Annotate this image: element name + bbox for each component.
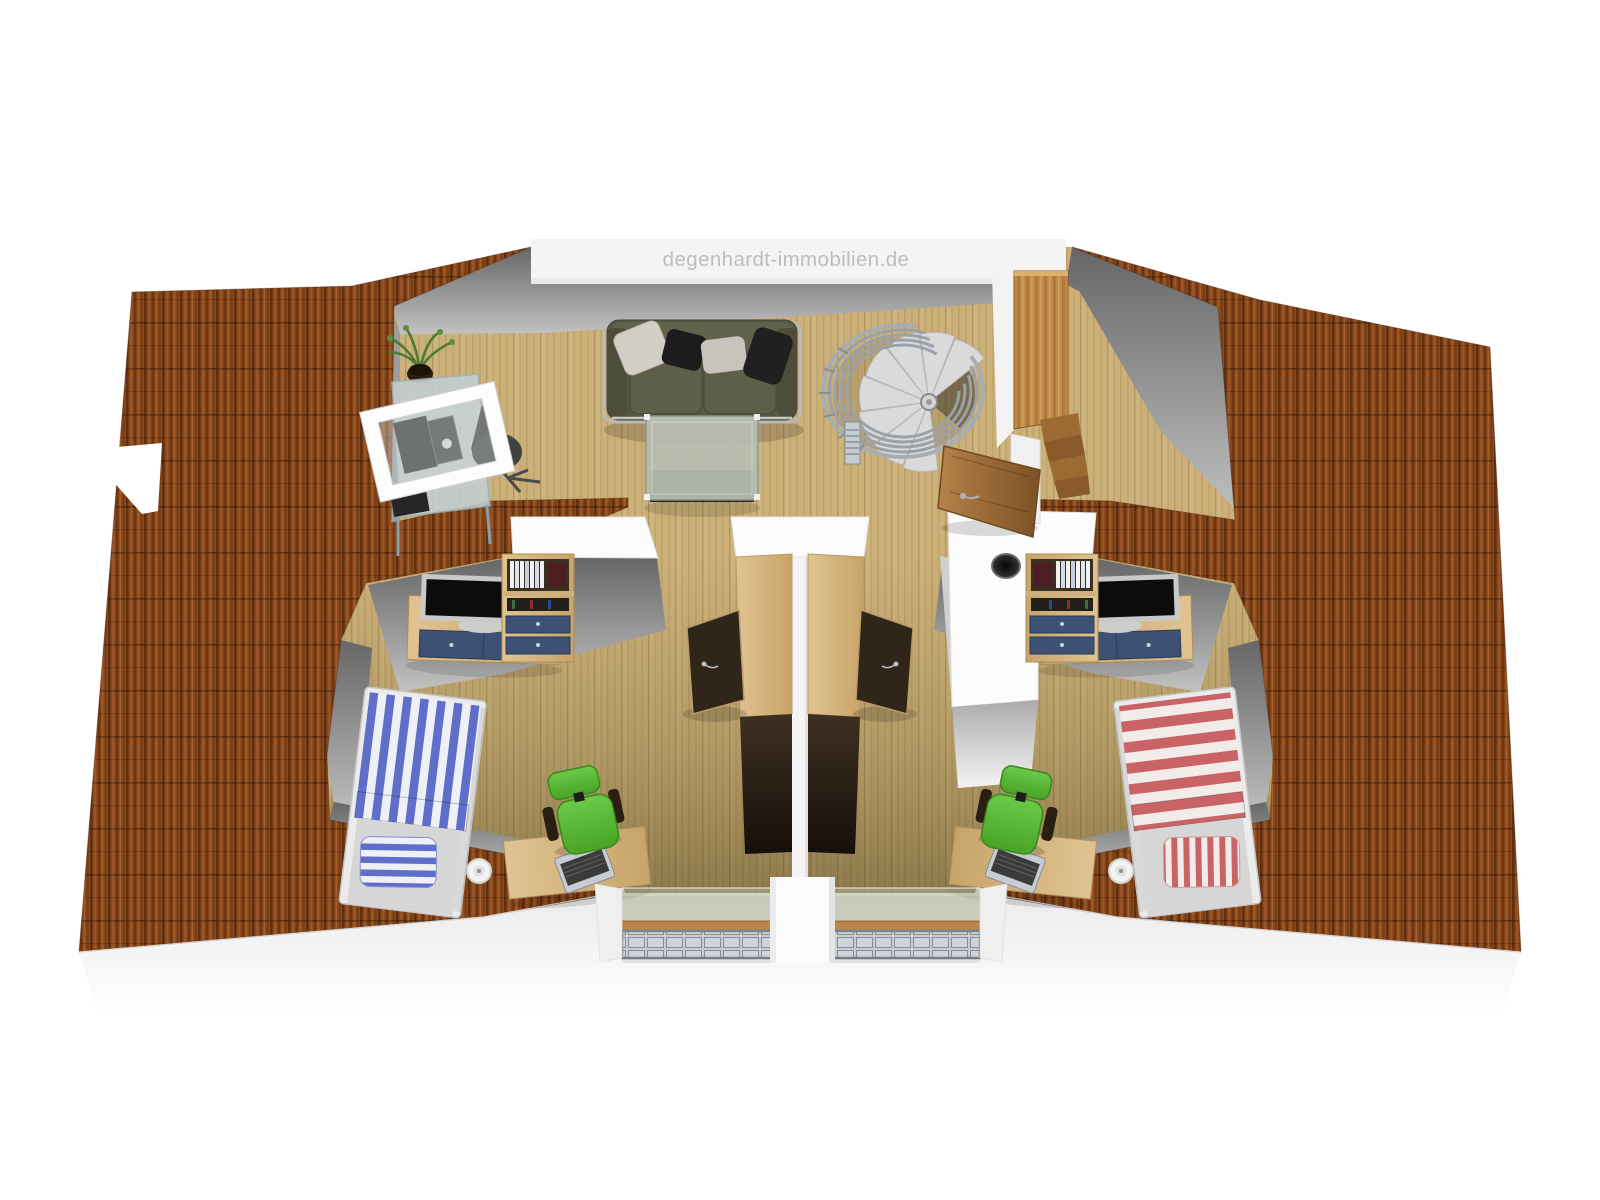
wardrobe-right-top: [808, 554, 864, 717]
balcony-railing: [829, 931, 980, 958]
pillow-blue: [360, 836, 437, 887]
jamb-left: [595, 884, 622, 962]
floor-plan-rendering: degenhardt-immobilien.de: [0, 0, 1600, 1200]
coffee-table: [644, 414, 760, 517]
pillow-red: [1163, 836, 1240, 887]
sill: [618, 921, 776, 931]
center-pillar: [770, 877, 835, 963]
floor-plan-canvas: degenhardt-immobilien.de: [0, 0, 1600, 1200]
pillow-light-2: [700, 335, 748, 374]
bookshelf: [502, 554, 574, 662]
wardrobe-left-top: [736, 554, 792, 717]
balcony-right: [826, 888, 984, 963]
top-wall-band: degenhardt-immobilien.de: [531, 239, 1066, 284]
duvet-blue: [357, 692, 481, 809]
paper-roll: [467, 859, 491, 883]
balcony-left: [618, 888, 776, 963]
closet-door-right: [856, 610, 913, 714]
watermark-text: degenhardt-immobilien.de: [663, 248, 910, 271]
glazing: [829, 888, 980, 923]
wardrobe-left-front: [740, 714, 792, 854]
wardrobe-right-front: [808, 714, 860, 854]
closet-door-left: [687, 610, 744, 714]
sill: [826, 921, 984, 931]
duvet-red: [1119, 692, 1243, 809]
bed-blue: [339, 687, 487, 918]
glazing: [622, 888, 773, 923]
newel-post: [845, 422, 860, 464]
jamb-right: [980, 884, 1007, 962]
left-room-wall-top: [511, 517, 658, 558]
books: [510, 561, 566, 588]
balcony-railing: [622, 931, 773, 958]
bed-red: [1113, 687, 1261, 918]
chimney-flue-hole: [992, 554, 1020, 578]
wardrobe-back-band: [731, 517, 869, 557]
